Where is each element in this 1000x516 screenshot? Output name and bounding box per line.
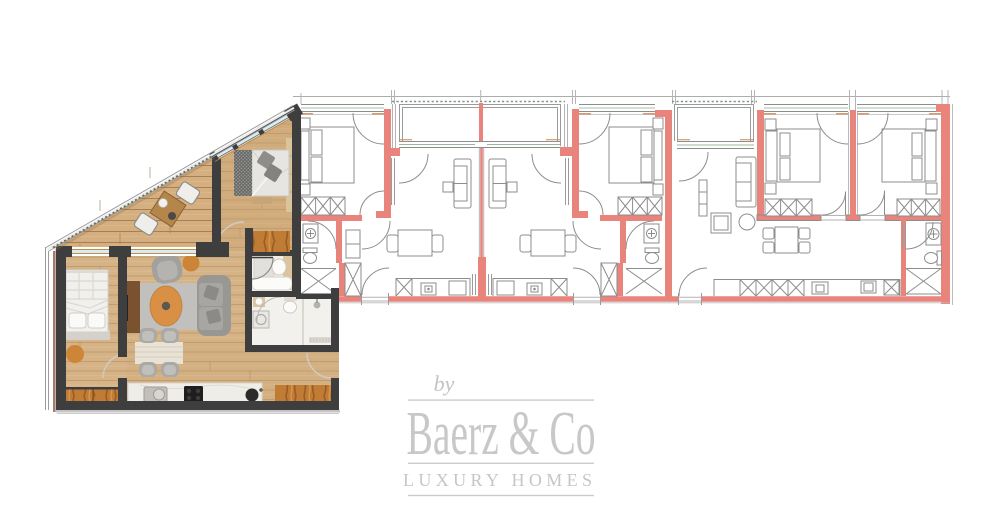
svg-text:LUXURY HOMES: LUXURY HOMES: [403, 470, 599, 490]
svg-text:Baerz & Co: Baerz & Co: [407, 400, 596, 468]
svg-text:by: by: [434, 371, 455, 396]
